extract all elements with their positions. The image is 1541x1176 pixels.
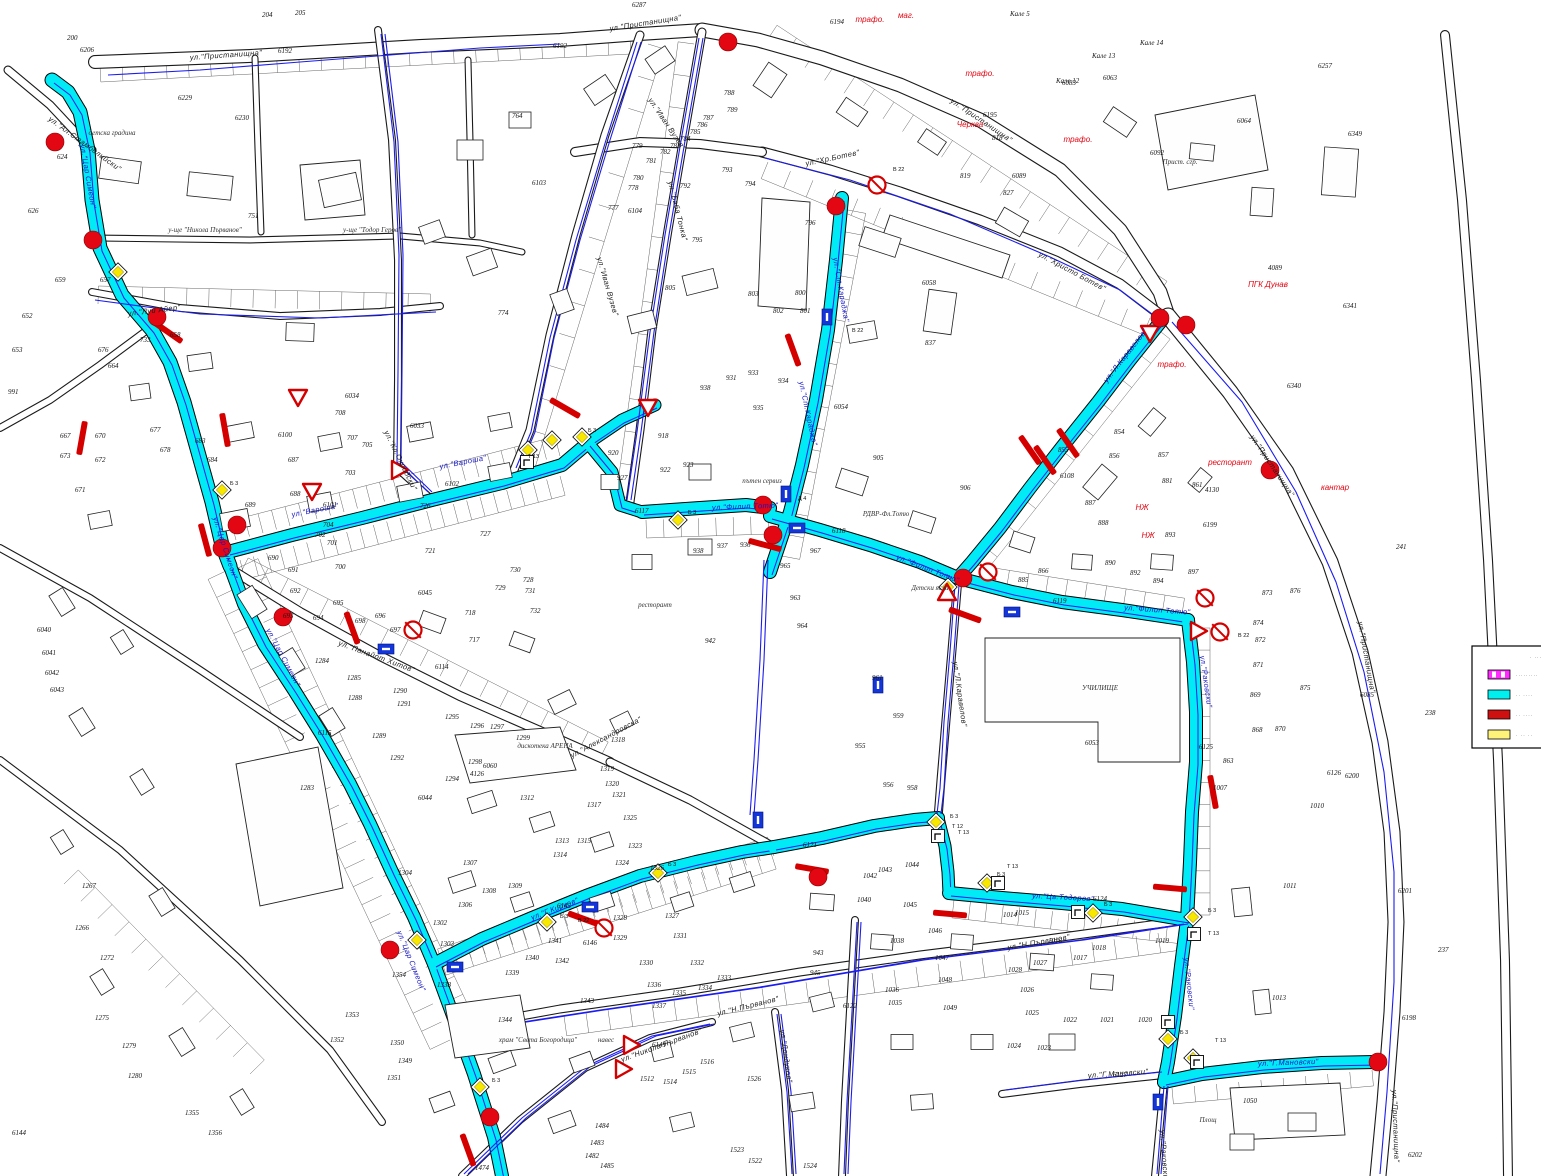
road-fill [255,58,261,232]
parcel-tick [199,1008,213,1022]
parcel-number: 784 [680,135,691,143]
parcel-number: 652 [22,312,33,320]
parcel-number: Кале 13 [1091,52,1116,60]
parcel-tick [715,868,721,887]
parcel-number: 6125 [1199,743,1214,751]
parcel-tick [848,210,866,213]
parcel-tick [280,550,285,569]
yield-sign-icon [1191,622,1207,640]
direction-sign-icon [1072,906,1085,919]
parcel-tick [716,518,717,536]
building [466,248,497,276]
parcel-tick [1026,952,1029,972]
parcel-number: 708 [335,409,346,417]
building [1072,554,1093,570]
building [645,46,675,74]
building [836,97,868,126]
poi-label: ресторант [637,601,672,609]
info-sign-icon [793,527,801,529]
parcel-number: 936 [740,541,751,549]
parcel-number: 1296 [470,722,485,730]
parcel-number: 6146 [583,939,598,947]
parcel-tick [1078,230,1089,247]
parcel-tick [633,894,639,913]
parcel-tick [387,522,392,541]
parcel-number: 732 [530,607,541,615]
parcel-tick [1020,192,1031,209]
parcel-number: 6119 [1053,597,1067,605]
building [548,690,577,715]
sign-code-label: Б 3 [560,914,568,920]
parcel-number: 6114 [435,663,449,671]
street-label: ул."Н.Първанов" [715,994,779,1018]
parcel-number: 6198 [1402,1014,1417,1022]
parcel-number: 4126 [470,770,485,778]
road-closure-bar-icon [549,397,581,419]
parcel-number: 1312 [520,794,535,802]
parcel-number: 965 [780,562,791,570]
parcel-number: 1326 [650,864,665,872]
parcel-number: 955 [855,742,866,750]
parcel-number: 1523 [730,1146,745,1154]
parcel-number: 693 [283,612,294,620]
parcel-number: 1333 [717,974,732,982]
parcel-number: 1309 [508,882,523,890]
building [809,893,834,911]
sign-code-label: В 22 [893,167,904,173]
building [1321,147,1358,197]
parcel-number: 803 [748,290,759,298]
building [1230,1134,1254,1150]
sign-code-label: Т 13 [1215,1038,1226,1044]
building [971,1035,993,1050]
parcel-number: 6063 [1103,74,1118,82]
parcel-number: 6195 [983,111,998,119]
parcel-number: 861 [1192,481,1203,489]
building [1138,408,1166,437]
parcel-number: 1013 [1272,994,1287,1002]
parcel-tick [550,366,565,371]
building [1151,554,1174,570]
parcel-number: 854 [1114,428,1125,436]
building [457,140,483,160]
building [810,992,835,1012]
parcel-number: 6341 [1343,302,1357,310]
sign-code-label: Б 3 [997,872,1005,878]
parcel-number: 707 [347,434,358,442]
parcel-number: 1050 [1243,1097,1258,1105]
parcel-number: 866 [1038,567,1049,575]
parcel-tick [520,487,525,506]
parcel-tick [400,640,408,656]
parcel-number: 1011 [1283,882,1296,890]
parcel-number: 1341 [548,937,562,945]
parcel-number: 6144 [12,1129,27,1137]
street-label: ул."Панайот Хитов" [336,638,416,674]
parcel-number: 1024 [1007,1042,1022,1050]
sign-code-label: Т 13 [958,830,969,836]
parcel-number: 673 [60,452,71,460]
parcel-number: 702 [315,531,326,539]
parcel-number: 964 [797,622,808,630]
parcel-number: 1512 [640,1075,655,1083]
parcel-number: 683 [195,437,206,445]
parcel-number: 1285 [347,674,362,682]
poi-label-red: трафо. [1158,360,1187,369]
parcel-tick [523,930,529,949]
utility-line [765,158,1152,314]
road-fill [1445,35,1508,1176]
parcel-tick [362,895,382,904]
parcel-number: 6108 [1060,472,1075,480]
red-marker-icon [46,133,64,151]
parcel-tick [320,539,325,558]
parcel-number: 872 [1255,636,1266,644]
parcel-tick [968,902,970,920]
parcel-tick [806,982,809,1002]
parcel-tick [300,589,308,605]
parcel-number: 1337 [652,1002,667,1010]
legend-swatch [1501,672,1505,678]
legend-label: ·· ···· [1516,713,1533,718]
parcel-number: Кале 14 [1139,39,1164,47]
parcel-number: 918 [658,432,669,440]
parcel-number: 789 [727,106,738,114]
parcel-number: 200 [67,34,78,42]
parcel-number: 1351 [387,1074,401,1082]
parcel-number: 934 [778,377,789,385]
parcel-number: 938 [700,384,711,392]
parcel-number: 897 [1188,568,1199,576]
building [129,383,151,401]
parcel-number: 793 [722,166,733,174]
parcel-number: 963 [790,594,801,602]
parcel-number: 827 [1003,189,1014,197]
parcel-number: 718 [465,609,476,617]
direction-sign-icon [992,877,1005,890]
building [951,934,974,950]
parcel-number: 678 [160,446,171,454]
parcel-number: 6122 [843,1002,858,1010]
utility-line [754,560,768,815]
parcel-tick [851,199,858,216]
parcel-number: 1526 [747,1075,762,1083]
parcel-number: 6340 [1287,382,1302,390]
red-marker-icon [1151,309,1169,327]
parcel-number: 727 [480,530,491,538]
parcel-number: 1016 [1048,937,1063,945]
info-sign-icon [451,966,459,968]
utility-line [462,924,1188,1032]
sign-code-label: Б 3 [688,510,696,516]
parcel-number: 1343 [580,997,595,1005]
parcel-number: 698 [355,617,366,625]
info-sign-icon [1157,1098,1159,1106]
parcel-tick [285,507,290,526]
parcel-tick [784,171,791,188]
parcel-number: 6040 [37,626,52,634]
parcel-number: 887 [1085,499,1096,507]
parcel-number: 1045 [903,901,918,909]
parcel-tick [961,153,972,170]
parcel-tick [352,489,357,508]
building [90,969,114,996]
poi-label-red: маг. [898,11,914,20]
poi-label: у-ще "Тодор Геров" [342,226,401,234]
parcel-number: 1339 [505,969,520,977]
parcel-tick [360,529,365,548]
poi-label: Детски ясли [910,584,949,592]
parcel-number: 691 [288,566,299,574]
parcel-tick [1194,1086,1195,1102]
parcel-tick [1051,911,1053,929]
parcel-number: 959 [893,712,904,720]
parcel-number: 931 [726,374,737,382]
parcel-number: 6149 [652,1041,667,1049]
parcel-number: 6287 [632,1,647,9]
cadastral-map: ул."Цар Симеон"ул."Цар Симеон"ул."Цар Си… [0,0,1541,1176]
legend-swatch [1488,670,1510,679]
building [318,433,342,452]
parcel-number: 1042 [863,872,878,880]
building [169,1028,195,1057]
legend-label: ········· [1516,673,1539,678]
parcel-tick [258,514,263,533]
poi-label: храм "Света Богородица" [498,1036,577,1044]
parcel-number: 881 [1162,477,1173,485]
parcel-tick [345,859,365,868]
parcel-number: 6101 [323,501,337,509]
parcel-number: 874 [1253,619,1264,627]
poi-label-red: кантар [1321,483,1350,492]
parcel-tick [663,519,664,537]
parcel-number: 1279 [122,1042,137,1050]
parcel-number: 704 [323,521,334,529]
parcel-number: 6192 [553,42,568,50]
parcel-number: 1021 [1100,1016,1114,1024]
parcel-tick [916,967,919,987]
road-fill [1002,1075,1164,1094]
parcel-number: 958 [907,784,918,792]
parcel-number: 1294 [445,775,460,783]
parcel-tick [674,74,690,76]
parcel-number: 1332 [690,959,705,967]
parcel-number: 1044 [905,861,920,869]
parcel-number: Кале 5 [1009,10,1030,18]
parcel-number: 6092 [1150,149,1165,157]
parcel-number: 6045 [418,589,433,597]
parcel-tick [1172,1088,1173,1104]
parcel-number: 6044 [418,794,433,802]
parcel-number: 6145 [557,902,572,910]
poi-label-red: трафо. [1064,135,1093,144]
parcel-tick [307,543,312,562]
building [1230,1083,1345,1140]
parcel-number: 6192 [278,47,293,55]
building [918,129,947,156]
info-sign-icon [1008,611,1016,613]
parcel-tick [495,938,501,957]
parcel-tick [782,556,800,559]
parcel-number: 6060 [483,762,498,770]
parcel-number: 4089 [1268,264,1283,272]
poi-label: РДВР-Фл.Тотю [862,510,909,518]
parcel-number: 1018 [1092,944,1107,952]
parcel-number: 676 [98,346,109,354]
parcel-number: 1299 [516,734,531,742]
parcel-number: 1292 [390,754,405,762]
parcel-number: 906 [960,484,971,492]
parcel-number: 943 [813,949,824,957]
parcel-tick [1104,586,1107,602]
parcel-number: 788 [724,89,735,97]
poi-label-red: НЖ [1135,503,1149,512]
parcel-tick [559,333,574,338]
parcel-number: 938 [693,547,704,555]
parcel-tick [433,468,438,487]
sign-code-label: Б 3 [588,428,596,434]
parcel-number: 778 [628,184,639,192]
parcel-number: 892 [1130,569,1141,577]
parcel-tick [674,1001,677,1021]
red-marker-icon [84,231,102,249]
parcel-number: 1040 [857,896,872,904]
parcel-tick [981,166,992,183]
parcel-tick [509,934,515,953]
parcel-number: 6034 [345,392,360,400]
parcel-number: 672 [95,456,106,464]
parcel-number: 873 [1262,589,1273,597]
parcel-number: 783 [670,142,681,150]
street-label: ул."Иван Вузев" [595,255,621,317]
road-closure-bar-icon [933,910,967,919]
poi-label: УЧИЛИЩЕ [1082,684,1119,692]
parcel-tick [646,520,647,538]
road-fill [95,30,702,62]
parcel-number: 794 [745,180,756,188]
parcel-number: 6349 [1348,130,1363,138]
parcel-number: 671 [75,486,86,494]
yield-sign-icon [289,390,307,406]
parcel-number: 1356 [208,1129,223,1137]
parcel-number: 705 [362,441,373,449]
red-marker-icon [381,941,399,959]
parcel-number: 695 [333,599,344,607]
building [1009,531,1035,553]
red-marker-icon [481,1108,499,1126]
parcel-tick [233,1043,247,1057]
parcel-backline [98,286,430,294]
parcel-number: 1323 [628,842,643,850]
parcel-tick [844,76,855,93]
parcel-number: 1344 [498,1016,513,1024]
building [729,871,755,892]
parcel-number: 863 [1223,757,1234,765]
parcel-number: 6117 [635,507,649,515]
parcel-tick [1039,204,1050,221]
sign-code-label: В 22 [578,918,589,924]
parcel-tick [648,44,663,49]
parcel-tick [1372,1070,1373,1086]
parcel-tick [271,510,276,529]
building [488,1050,516,1073]
parcel-tick [698,518,699,536]
parcel-number: 1284 [315,657,330,665]
map-canvas[interactable]: ул."Цар Симеон"ул."Цар Симеон"ул."Цар Си… [0,0,1541,1176]
parcel-number: 1289 [372,732,387,740]
parcel-number: 894 [1153,577,1164,585]
building [187,352,213,371]
parcel-tick [669,107,685,109]
building [445,995,530,1058]
parcel-number: 933 [748,369,759,377]
building [1083,464,1118,500]
parcel-number: 956 [883,781,894,789]
parcel-number: 1317 [587,801,602,809]
building [908,511,936,534]
building [548,1110,576,1133]
poi-label: детска градина [89,129,136,137]
parcel-number: 923 [683,461,694,469]
parcel-number: 1514 [663,1078,678,1086]
parcel-number: 6054 [834,403,849,411]
parcel-number: 6257 [1318,62,1333,70]
parcel-tick [480,497,485,516]
parcel-number: 717 [469,636,480,644]
direction-sign-icon [1162,1016,1175,1029]
parcel-tick [453,504,458,523]
parcel-number: 658 [170,331,181,339]
building [226,422,255,443]
parcel-number: 1290 [393,687,408,695]
parcel-number: 696 [375,612,386,620]
red-marker-icon [809,868,827,886]
building [448,871,476,894]
parcel-number: 1007 [1213,784,1228,792]
parcel-number: 1484 [595,1122,610,1130]
parcel-number: 6199 [1203,521,1218,529]
parcel-number: Кале 12 [1055,77,1080,85]
red-marker-icon [827,197,845,215]
parcel-number: 792 [680,182,691,190]
legend-label: ·· ···· [1516,693,1533,698]
road-casing [1445,35,1508,1176]
parcel-number: 1048 [938,976,953,984]
parcel-number: 1334 [698,984,713,992]
parcel-number: 1307 [463,859,478,867]
parcel-number: 731 [525,587,536,595]
parcel-number: 238 [1425,709,1436,717]
building [836,468,869,496]
parcel-number: 805 [665,284,676,292]
poi-label: навес [598,1036,615,1044]
parcel-tick [413,515,418,534]
parcel-tick [353,877,373,886]
parcel-number: 1329 [613,934,628,942]
street-label: ул."Александровска" [568,714,643,760]
parcel-number: 241 [1396,543,1407,551]
street-cyan [774,818,938,847]
parcel-number: 1350 [390,1039,405,1047]
building [670,892,694,912]
parcel-tick [1008,263,1015,280]
parcel-number: 779 [632,142,643,150]
parcel-number: 703 [345,469,356,477]
parcel-tick [872,973,875,993]
parcel-tick [547,480,552,499]
road-closure-bar-icon [76,421,88,456]
parcel-number: 694 [313,614,324,622]
